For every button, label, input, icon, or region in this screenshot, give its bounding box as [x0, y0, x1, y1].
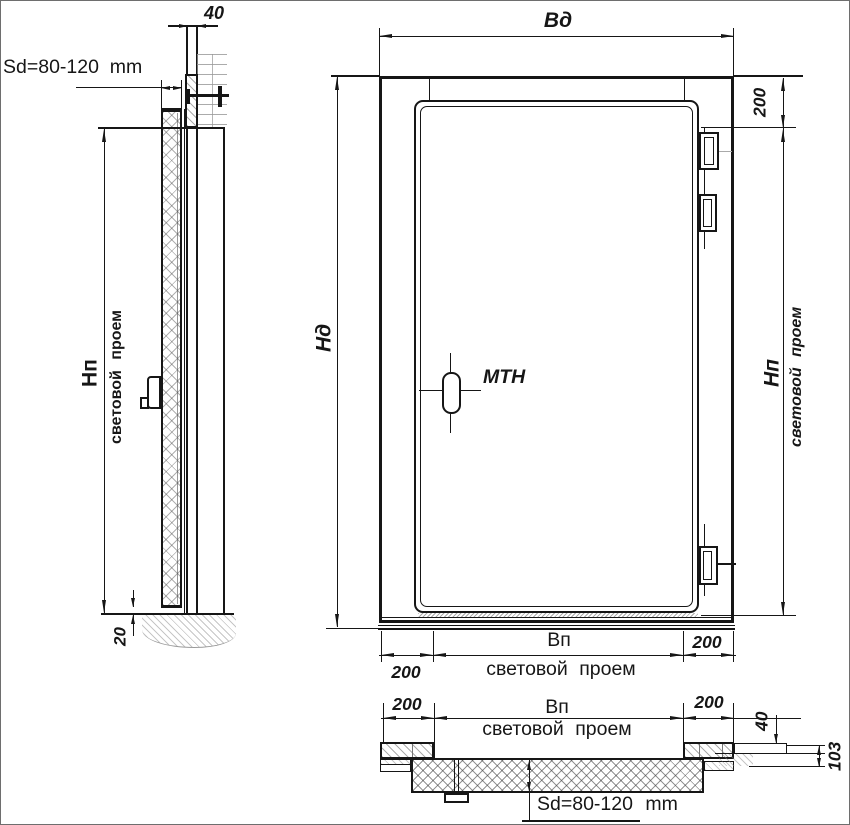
arrowhead [379, 34, 392, 38]
extension-line [161, 80, 162, 108]
extension-line [683, 703, 684, 743]
door-leaf-inner-edge [420, 106, 693, 607]
dim-caption-opening-width: световой проем [461, 717, 653, 743]
arrowhead [161, 86, 170, 90]
dim-label-frame-depth: 103 [821, 731, 849, 781]
hinge-middle-plate [703, 199, 712, 227]
hinge-bottom-plate [703, 551, 712, 580]
panel-edge-strip [380, 764, 411, 772]
arrowhead [102, 129, 106, 142]
leaf-bottom-protrusion [444, 793, 469, 803]
dim-label-opening-width: Вп [537, 629, 581, 653]
frame-jamb-left [380, 742, 434, 759]
extension-line [326, 628, 379, 630]
anchor-bolt [187, 94, 229, 97]
dim-label-opening-height: Нп [758, 338, 786, 408]
sill-line [378, 625, 735, 626]
anchor-bolt-plate [218, 86, 222, 107]
door-handle-front [442, 372, 461, 414]
extension-line [181, 80, 182, 108]
dim-label-door-height: Нд [310, 304, 338, 372]
dim-label-door-width: Вд [527, 6, 589, 34]
opening-edge-line [429, 79, 431, 100]
floor-hatch [142, 615, 236, 648]
dimension-line [379, 36, 734, 37]
arrowhead [781, 78, 785, 91]
dim-label-overlap-right: 200 [685, 691, 733, 715]
dim-label-overlap-left: 200 [383, 693, 431, 717]
dimension-line [168, 25, 218, 27]
arrowhead [527, 761, 531, 770]
dim-label-overlap-left: 200 [382, 661, 430, 685]
dim-label-opening-height: Нп [77, 329, 103, 417]
arrowhead [335, 77, 339, 90]
arrowhead [781, 602, 785, 615]
arrowhead [670, 653, 683, 657]
hinge-tick [719, 151, 732, 152]
hinge-top-plate [704, 137, 714, 165]
arrowhead [102, 600, 106, 613]
extension-line [734, 75, 803, 77]
handle-mtn-label: МТН [483, 365, 543, 390]
arrowhead [817, 746, 821, 755]
door-handle-side-foot [140, 397, 149, 409]
opening-edge-line [684, 79, 686, 100]
dim-label-panel-thickness: 40 [195, 1, 233, 25]
jamb-division [412, 744, 413, 757]
arrowhead [131, 598, 135, 607]
extension-line [381, 631, 382, 662]
jamb-division [699, 744, 700, 757]
wall-sketch-hatch [719, 754, 753, 766]
door-leaf-section [161, 108, 182, 608]
arrowhead [381, 653, 394, 657]
wall-inner-edge [223, 128, 225, 614]
dim-caption-opening-height: световой проем [784, 283, 810, 471]
extension-line [433, 631, 434, 662]
wall-brick-hatch [197, 54, 227, 128]
arrowhead [781, 115, 785, 128]
dim-label-floor-gap: 20 [107, 619, 133, 655]
dim-label-overlap-top: 200 [747, 79, 773, 125]
leader-line [76, 87, 161, 88]
dim-label-panel-thickness: 40 [749, 702, 775, 740]
dim-label-door-thickness-range: Sd=80-120 mm [3, 55, 175, 81]
dim-caption-opening-width: световой проем [465, 657, 657, 683]
opening-top-line [98, 127, 225, 129]
sill-line [379, 617, 734, 618]
dim-label-door-thickness-range: Sd=80-120 mm [537, 791, 719, 818]
extension-line [733, 631, 734, 662]
arrowhead [683, 716, 696, 720]
arrowhead [335, 614, 339, 627]
arrowhead [817, 758, 821, 767]
door-technical-drawing: 40 Sd=80-120 mm Нп световой про [0, 0, 850, 825]
arrowhead [721, 34, 734, 38]
arrowhead [781, 129, 785, 142]
arrowhead [433, 653, 446, 657]
anchor-bolt-nut [187, 89, 190, 104]
dim-caption-opening-height: световой проем [104, 279, 130, 475]
gap-line [184, 109, 185, 614]
arrowhead [527, 782, 531, 791]
hinge-tick [717, 563, 736, 565]
door-handle-side [147, 376, 161, 409]
arrowhead [721, 716, 734, 720]
leaf-seam-line [458, 760, 459, 791]
extension-line [749, 766, 825, 767]
extension-line [733, 703, 734, 745]
arrowhead [434, 716, 447, 720]
leader-underline [522, 820, 640, 822]
dim-label-overlap-right: 200 [683, 631, 731, 655]
arrowhead [420, 653, 433, 657]
arrowhead [670, 716, 683, 720]
leaf-inner-line [177, 113, 178, 604]
leaf-seam-line [454, 760, 455, 791]
